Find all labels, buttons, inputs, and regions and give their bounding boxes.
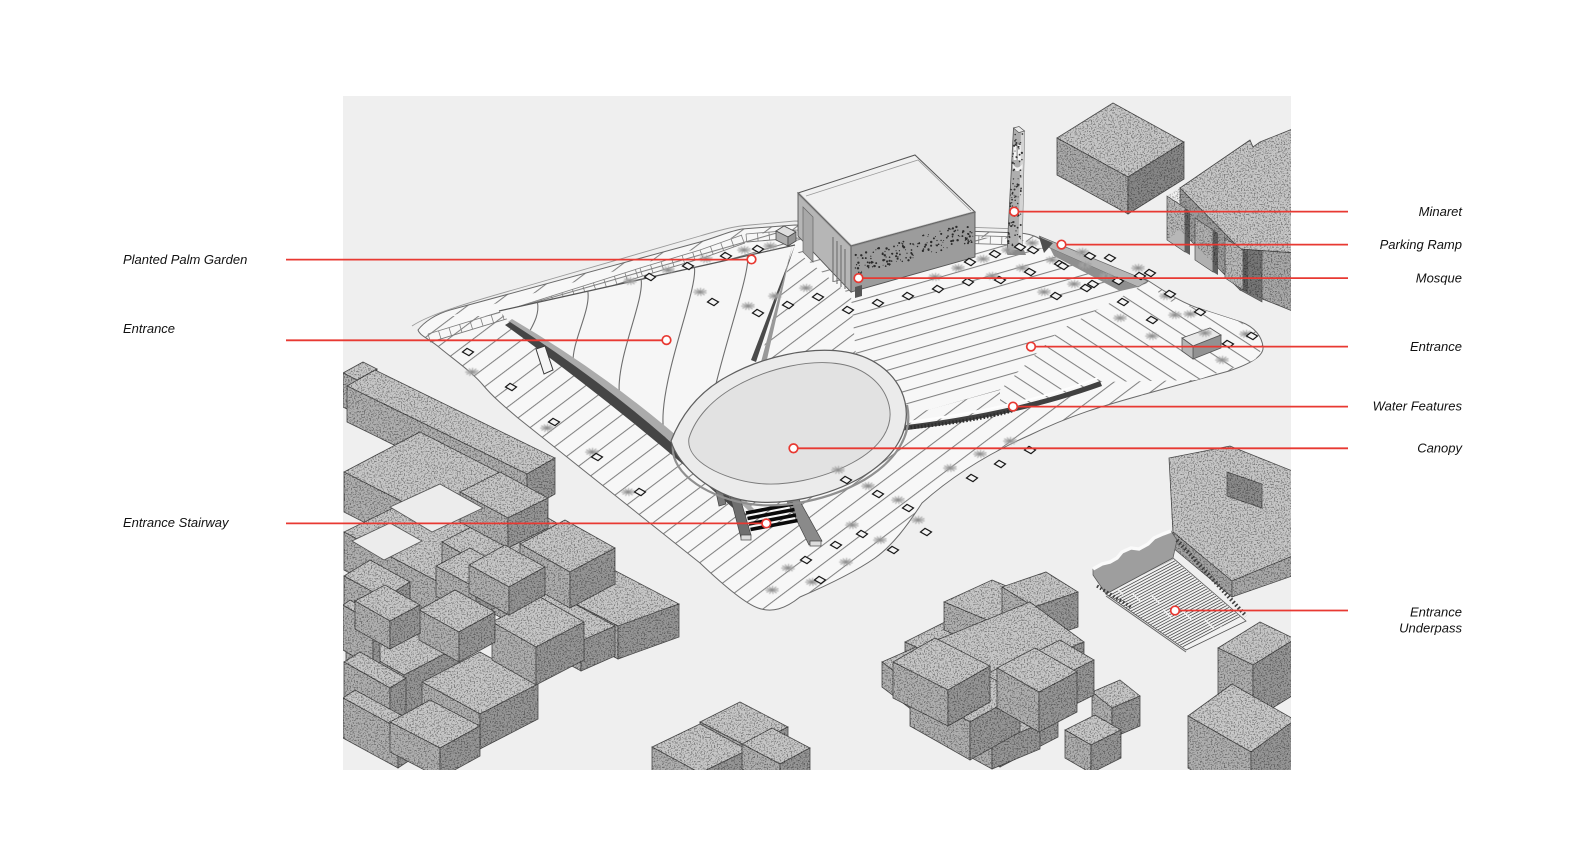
svg-text:Mosque: Mosque — [1416, 270, 1462, 285]
svg-text:Water Features: Water Features — [1373, 399, 1463, 414]
svg-text:Planted Palm Garden: Planted Palm Garden — [123, 252, 247, 267]
svg-text:Entrance Stairway: Entrance Stairway — [123, 515, 230, 530]
svg-text:Minaret: Minaret — [1419, 204, 1464, 219]
svg-text:Parking Ramp: Parking Ramp — [1380, 237, 1462, 252]
svg-text:Entrance: Entrance — [1410, 339, 1462, 354]
svg-text:Underpass: Underpass — [1399, 621, 1462, 636]
svg-text:Entrance: Entrance — [1410, 604, 1462, 619]
svg-text:Entrance: Entrance — [123, 321, 175, 336]
svg-text:Canopy: Canopy — [1417, 441, 1463, 456]
